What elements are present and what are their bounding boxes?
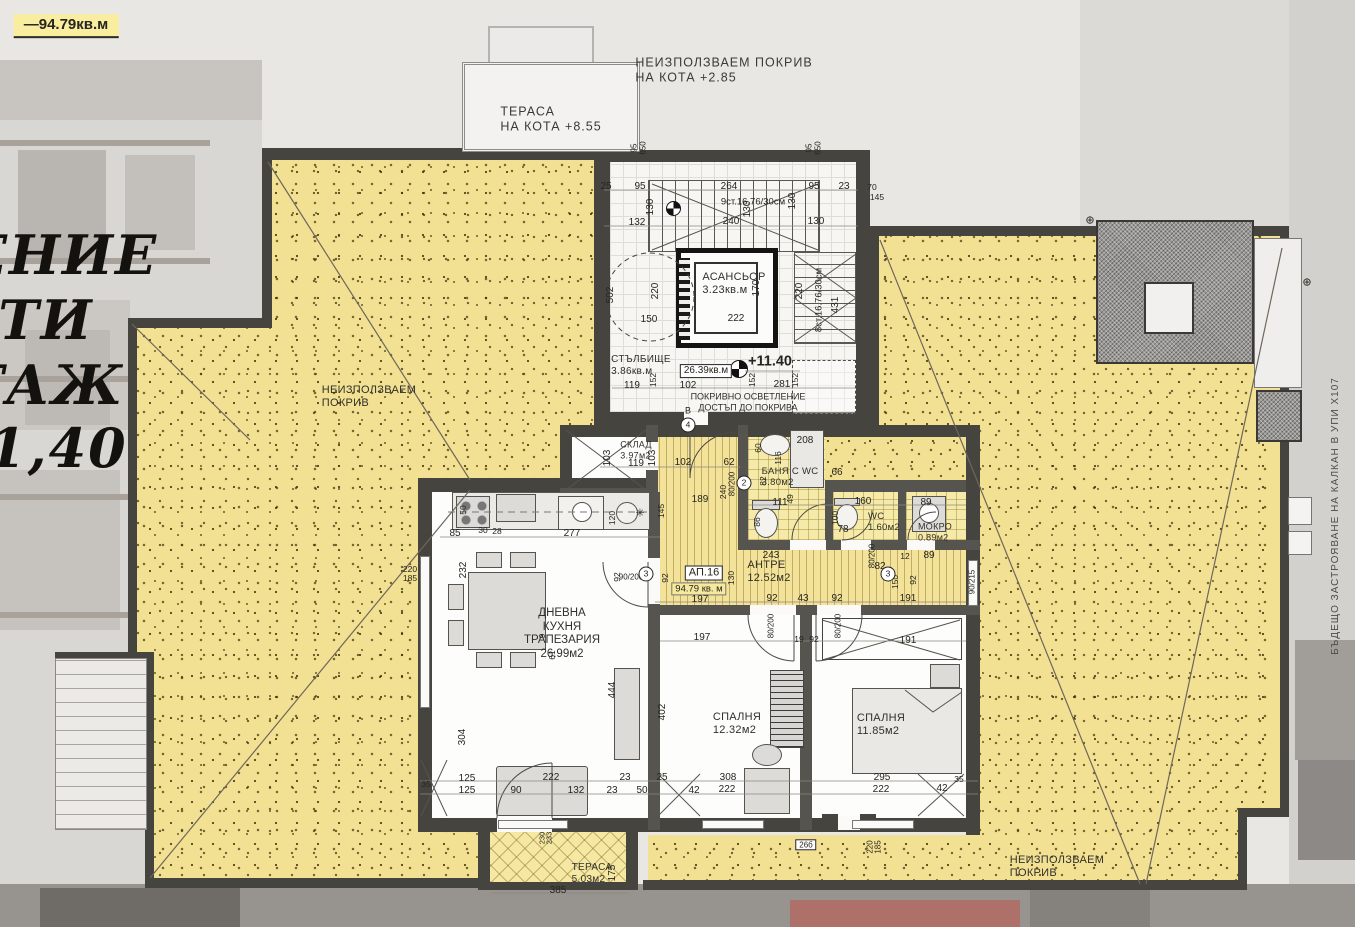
core-label: 130 [645,199,657,216]
core-label: 152 [790,373,800,387]
core-label: 4 [681,418,696,433]
dimension-label: 197 [694,632,711,644]
dimension-label: 92 [766,593,777,605]
core-label: 23 [838,181,849,193]
site-label: ⊕ [1302,277,1311,290]
dimension-label: 222 [873,784,890,796]
core-label: 95 [634,181,645,193]
dimension-label: 402 [657,704,669,721]
site-label: ⊕ [1085,215,1094,228]
roof-label-right: НЕИЗПОЛЗВАЕМ ПОКРИВ [1010,854,1104,880]
dimension-label: 92 [660,573,670,582]
core-label: 150 [641,314,658,326]
dimension-label: 102 [675,457,692,469]
core-label: 95 [808,181,819,193]
core-label: 431 [830,297,842,314]
core-label: 130 [808,216,825,228]
dimension-label: 444 [607,682,619,699]
core-label: 152 [747,373,757,387]
dimension-label: 125 [459,785,476,797]
core-label: 132 [629,217,646,229]
future-construction-note: БЪДЕЩО ЗАСТРОЯВАНЕ НА КАЛКАН В УПИ Х107 [1330,377,1342,655]
core-label: 650 [813,141,822,154]
dimension-label: 23 [606,785,617,797]
dimension-label: 295 [874,772,891,784]
dimension-label: 66 [831,467,842,479]
dimension-label: 3 [881,567,896,582]
dimension-label: 78 [837,524,848,536]
dimension-label: 116 [773,451,783,465]
dimension-label: 9 [537,634,547,639]
terrace-level-note: ТЕРАСА НА КОТА +8.55 [500,104,601,134]
dimension-label: 80/200 [727,472,736,496]
dimension-label: 35 [954,774,963,784]
room-label-bedroom-2: СПАЛНЯ 11.85м2 [857,712,905,738]
dimension-label: 50 [458,505,468,514]
dimension-label: 185 [873,840,882,853]
dimension-label: 119 [628,458,644,470]
core-label: 25 [600,181,611,193]
core-label: 170 [751,280,763,297]
dimension-label: 60 [753,443,763,452]
dimension-label: 175 [607,865,619,882]
core-label: 222 [728,313,745,325]
core-label: 70 [867,182,876,192]
dimension-label: 30 [478,525,487,535]
dimension-label: 80/200 [833,614,842,638]
skylight-note: ПОКРИВНО ОСВЕТЛЕНИЕ ДОСТЪП ДО ПОКРИВА [691,391,806,412]
dimension-label: 25 [656,772,667,784]
core-label: 502 [605,287,617,304]
dimension-label: 62 [723,457,734,469]
core-label: 281 [774,379,791,391]
apartment-id: АП.16 [685,566,723,581]
dimension-label: 92 [809,634,818,644]
dimension-label: 145 [656,504,666,518]
dimension-label: 19 [794,634,803,644]
roof-level-note: НЕИЗПОЛЗВАЕМ ПОКРИВ НА КОТА +2.85 [635,55,812,85]
dimension-label: 197 [692,594,709,606]
dimension-label: 35 [421,779,430,789]
dimension-label: 42 [688,785,699,797]
dimension-label: 92 [831,593,842,605]
dimension-label: 103 [602,450,614,467]
dimension-label: 49 [785,494,795,503]
dimension-label: 222 [543,772,560,784]
core-label: 130 [787,193,799,210]
dimension-label: 82 [758,476,768,485]
dimension-label: 86 [752,517,762,526]
core-label: 130 [742,201,754,218]
core-label: 220 [650,283,662,300]
decorative-text-fragment: ТАЖ [0,354,125,418]
dimension-label: 50 [636,785,647,797]
core-label: 145 [870,192,884,202]
room-label-laundry: МОКРО 0.89м2 [918,521,952,542]
dimension-label: 233 [546,832,555,845]
dimension-label: 385 [550,885,567,897]
core-label: 220 [794,283,806,300]
element-tag: 26б [795,839,816,850]
floor-plan-drawing: —94.79кв.мЕНИЕТИТАЖ1,40ТЕРАСА НА КОТА +8… [0,0,1355,927]
core-label: 650 [638,141,647,154]
dimension-label: 92 [908,575,918,584]
room-label-wc: WC 1.60м2 [868,511,900,533]
dimension-label: 222 [719,784,736,796]
dimension-label: 243 [763,550,780,562]
dimension-label: 277 [564,528,581,540]
level-mark: +11.40 [748,353,792,370]
dimension-label: 304 [457,729,469,746]
core-label: 8ст.16.76/30см [813,268,824,332]
core-label: 152 [648,373,658,387]
dimension-label: 85 [449,528,460,540]
dimension-label: 191 [900,635,917,647]
dimension-label: 100 [830,511,840,525]
dimension-label: 3 [639,567,654,582]
dimension-label: 23 [619,772,630,784]
room-label-living-kitchen: ДНЕВНА КУХНЯ ТРАПЕЗАРИЯ 26.99м2 [524,607,600,661]
room-label-hall: АНТРЕ 12.52м2 [747,559,790,585]
dimension-label: 90 [510,785,521,797]
dimension-label: 61 [547,650,557,659]
core-label: В [685,406,691,417]
dimension-label: 89 [923,550,934,562]
dimension-label: 308 [720,772,737,784]
dimension-label: 80/200 [766,614,775,638]
dimension-label: 89 [920,497,931,509]
core-area-box: 26.39кв.м [680,364,732,378]
decorative-text-fragment: ТИ [0,289,94,353]
dimension-label: ✳ [635,508,644,521]
dimension-label: 130 [726,571,736,585]
dimension-label: 120 [607,511,617,525]
dimension-label: 189 [692,494,709,506]
dimension-label: 125 [459,773,476,785]
room-label-stairs: СТЪЛБИЩЕ 3.86кв.м [611,354,671,378]
core-label: 240 [723,216,740,228]
core-label: 119 [624,380,640,392]
dimension-label: 103 [647,450,659,467]
dimension-label: 232 [458,562,470,579]
dimension-label: 191 [900,593,917,605]
dimension-label: 12 [900,551,909,561]
roof-label-left: НЕИЗПОЛЗВАЕМ ПОКРИВ [322,384,416,410]
core-label: 102 [680,380,697,392]
dimension-label: 42 [936,783,947,795]
core-label: 264 [721,181,738,193]
room-label-bedroom-1: СПАЛНЯ 12.32м2 [713,711,761,737]
dimension-label: 2 [737,476,752,491]
area-note: —94.79кв.м [14,14,119,38]
dimension-label: 28 [492,526,501,536]
dimension-label: 208 [797,435,814,447]
dimension-label: 132 [568,785,585,797]
dimension-label: 90/215 [967,570,976,594]
dimension-label: 43 [797,593,808,605]
decorative-text-fragment: ЕНИЕ [0,224,158,288]
dimension-label: 185 [403,573,417,583]
decorative-text-fragment: 1,40 [0,417,128,481]
dimension-label: 160 [855,496,872,508]
room-label-bath: БАНЯ С WC 3.80м2 [762,466,819,488]
